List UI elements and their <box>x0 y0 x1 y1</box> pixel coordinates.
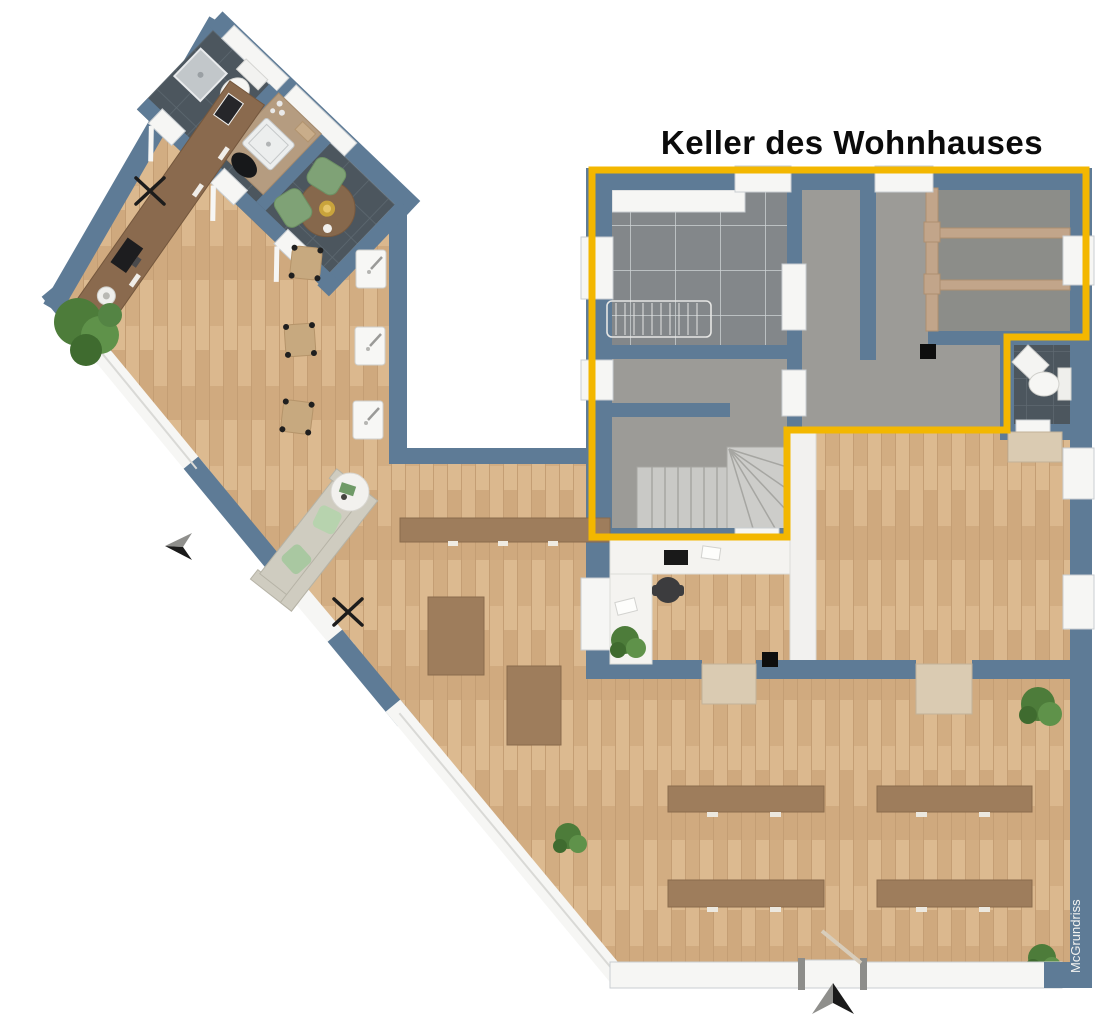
window <box>581 360 613 400</box>
corridor-top-wall <box>389 448 602 464</box>
shaft-symbol <box>920 344 936 359</box>
storage-partition-stub <box>924 274 940 294</box>
window <box>581 578 613 650</box>
hall-long-table <box>668 786 824 817</box>
salon-right-wall <box>389 204 407 464</box>
storage-partition-vertical <box>926 188 938 331</box>
laundry-worktop <box>612 190 745 212</box>
shaft-symbol <box>762 652 778 667</box>
storage-room-floor <box>938 190 1070 331</box>
wall-basin <box>356 250 386 288</box>
door-frame <box>798 958 805 990</box>
door-corridor <box>782 370 806 416</box>
corridor-divider-wall <box>860 190 876 360</box>
salon-chair <box>288 244 323 281</box>
storage-partition <box>938 280 1070 290</box>
window <box>1063 448 1094 499</box>
laundry-bottom-wall <box>592 345 802 359</box>
wall-basin <box>353 401 383 439</box>
coffee-table <box>331 473 369 511</box>
wall-basin <box>355 327 385 365</box>
hall-top-wall <box>756 660 916 679</box>
window <box>581 237 613 299</box>
hall-top-wall <box>972 660 1090 679</box>
hall-long-table <box>668 880 824 912</box>
laundry-room-floor <box>612 190 787 345</box>
office-right-wall-white <box>790 432 816 664</box>
watermark-text: McGrundriss <box>1068 899 1083 973</box>
toilet-bowl <box>1029 372 1059 396</box>
stair-room-top-wall <box>612 403 730 417</box>
storage-partition <box>938 228 1070 238</box>
sideboard <box>400 518 610 546</box>
papers <box>701 546 720 560</box>
direction-arrow <box>165 533 192 560</box>
salon-chair <box>279 398 315 436</box>
hall-long-table <box>877 786 1032 817</box>
storage-partition-stub <box>924 222 940 242</box>
salon-chair <box>283 322 317 358</box>
work-table <box>428 597 484 675</box>
window <box>1063 575 1094 629</box>
toilet-tank <box>1058 368 1071 400</box>
laptop <box>664 550 688 565</box>
floor-plan-page: McGrundriss Keller des Wohnhauses <box>0 0 1110 1018</box>
cabinet <box>1008 432 1062 462</box>
door-sill-office <box>702 664 756 704</box>
door-sill-hall-right <box>916 664 972 714</box>
page-title: Keller des Wohnhauses <box>612 124 1092 162</box>
door-laundry <box>782 264 806 330</box>
work-table <box>507 666 561 745</box>
hall-long-table <box>877 880 1032 912</box>
